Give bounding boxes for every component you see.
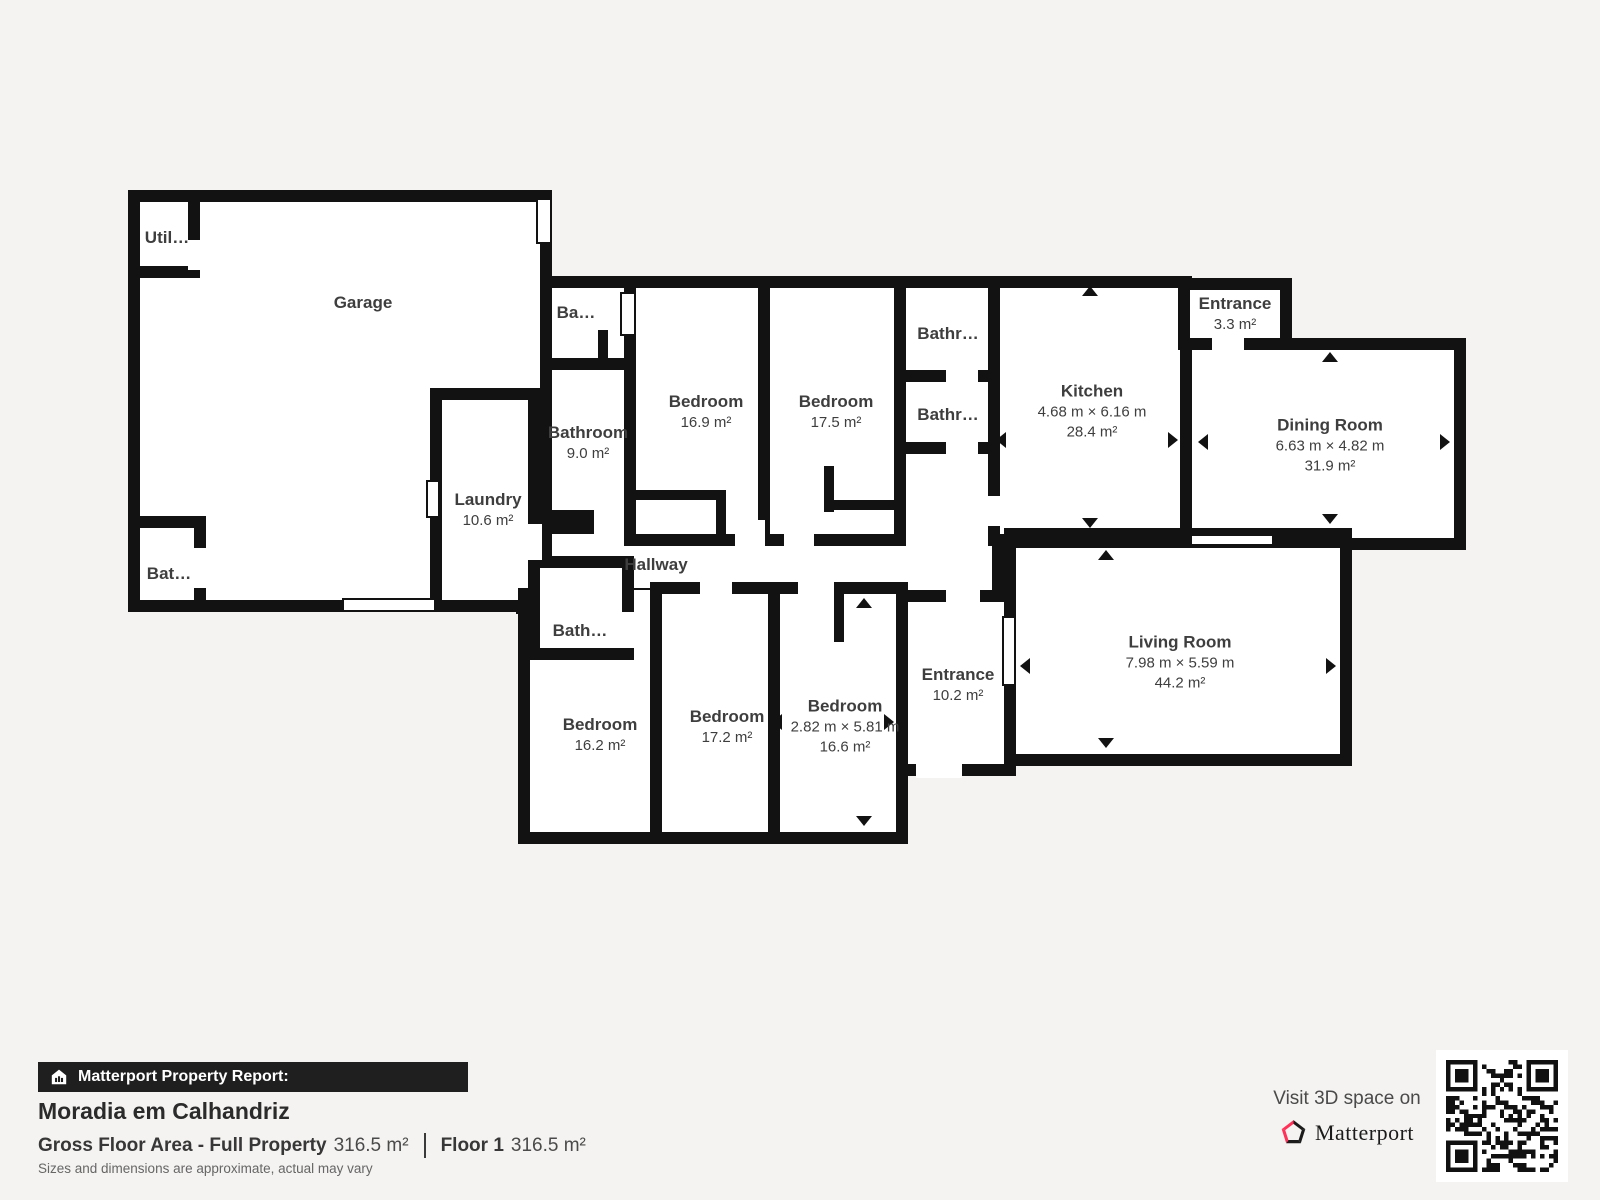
- floor-plan: Garage Util… Bat… Laundry 10.6 m² Ba… Ba…: [0, 0, 1600, 1000]
- door-bedroom-16-6: [798, 580, 834, 596]
- room-label-bathroom-lower: Bathr…: [917, 404, 978, 426]
- window-garage-right: [536, 198, 552, 244]
- room-label-bedroom-16-9: Bedroom 16.9 m²: [669, 391, 744, 433]
- room-label-bathroom-small-top: Ba…: [557, 302, 596, 324]
- window-garage-bottom: [342, 598, 436, 612]
- matterport-wordmark: Matterport: [1315, 1120, 1414, 1146]
- qr-code: [1436, 1050, 1568, 1182]
- room-label-bedroom-17-5: Bedroom 17.5 m²: [799, 391, 874, 433]
- room-label-bathroom-hall: Bath…: [553, 620, 608, 642]
- room-label-bedroom-16-2: Bedroom 16.2 m²: [563, 714, 638, 756]
- property-name: Moradia em Calhandriz: [38, 1098, 290, 1125]
- opening-bedroom-16-2: [634, 590, 650, 662]
- dimension-arrow-left-icon: [772, 714, 782, 730]
- room-label-entrance-small: Entrance 3.3 m²: [1199, 293, 1272, 335]
- door-entrance-main-top: [946, 588, 980, 604]
- room-label-bathroom-9: Bathroom 9.0 m²: [548, 422, 628, 464]
- room-label-kitchen: Kitchen 4.68 m × 6.16 m 28.4 m²: [1038, 380, 1147, 441]
- stats-divider: [424, 1133, 426, 1158]
- door-bathroom-lower: [946, 440, 978, 454]
- window-laundry: [426, 480, 440, 518]
- room-label-garage: Garage: [334, 292, 393, 314]
- dimension-arrow-down-icon: [1082, 518, 1098, 528]
- room-label-bedroom-16-6: Bedroom 2.82 m × 5.81 m 16.6 m²: [791, 695, 900, 756]
- dimension-arrow-right-icon: [1440, 434, 1450, 450]
- door-kitchen: [986, 496, 1006, 526]
- window-entrance-main: [1002, 616, 1016, 686]
- room-label-utility: Util…: [145, 227, 189, 249]
- wall-stub-bathroom-top: [598, 330, 608, 370]
- matterport-brand: Matterport: [1242, 1119, 1452, 1146]
- dimension-arrow-right-icon: [1168, 432, 1178, 448]
- wall-closet-16-9-v: [716, 490, 726, 546]
- report-banner-label: Matterport Property Report:: [78, 1068, 289, 1086]
- window-bathroom-small-top: [620, 292, 636, 336]
- room-label-bedroom-17-2: Bedroom 17.2 m²: [690, 706, 765, 748]
- room-label-entrance-main: Entrance 10.2 m²: [922, 664, 995, 706]
- door-bathroom-upper: [946, 368, 978, 384]
- dimension-arrow-up-icon: [1322, 352, 1338, 362]
- visit-3d-label: Visit 3D space on: [1242, 1088, 1452, 1110]
- hallway-floor-vertical: [906, 452, 992, 590]
- room-label-hallway: Hallway: [624, 554, 687, 576]
- dimension-arrow-left-icon: [996, 432, 1006, 448]
- floor-label: Floor 1: [441, 1135, 504, 1157]
- gross-area-label: Gross Floor Area - Full Property: [38, 1135, 327, 1157]
- room-label-dining: Dining Room 6.63 m × 4.82 m 31.9 m²: [1276, 414, 1385, 475]
- matterport-report-icon: [50, 1068, 68, 1086]
- wall-living-top: [1004, 528, 1352, 548]
- dimension-arrow-down-icon: [856, 816, 872, 826]
- door-entrance-main-bottom: [916, 760, 962, 778]
- wall-stub-bedroom-16-6: [834, 594, 844, 642]
- matterport-logo-icon: [1280, 1119, 1307, 1146]
- dimension-arrow-down-icon: [1322, 514, 1338, 524]
- door-bedroom-16-9: [735, 520, 765, 546]
- floor-value: 316.5 m²: [511, 1135, 586, 1157]
- gross-area-value: 316.5 m²: [334, 1135, 409, 1157]
- dimension-arrow-up-icon: [856, 598, 872, 608]
- area-stats: Gross Floor Area - Full Property 316.5 m…: [38, 1133, 586, 1158]
- room-label-living: Living Room 7.98 m × 5.59 m 44.2 m²: [1126, 631, 1235, 692]
- dimension-arrow-left-icon: [1198, 434, 1208, 450]
- door-entrance-small: [1212, 336, 1244, 352]
- visit-3d-block: Visit 3D space on Matterport: [1242, 1088, 1452, 1146]
- room-label-bathroom-garage: Bat…: [147, 563, 191, 585]
- door-bathroom-9: [594, 508, 624, 536]
- door-bedroom-17-2: [700, 580, 732, 596]
- door-bathroom-garage: [192, 548, 208, 588]
- report-banner: Matterport Property Report:: [38, 1062, 468, 1092]
- dimension-arrow-down-icon: [1098, 738, 1114, 748]
- dimension-arrow-left-icon: [1020, 658, 1030, 674]
- room-label-bathroom-upper: Bathr…: [917, 323, 978, 345]
- window-dining-living: [1190, 534, 1274, 546]
- room-bathroom-hall: [528, 556, 634, 660]
- door-laundry: [526, 524, 542, 560]
- dimension-arrow-up-icon: [1098, 550, 1114, 560]
- wall-closet-17-5-h: [824, 500, 906, 510]
- room-label-laundry: Laundry 10.6 m²: [454, 489, 521, 531]
- wall-closet-16-9-h: [636, 490, 726, 500]
- dimension-arrow-up-icon: [1082, 286, 1098, 296]
- door-utility: [188, 240, 202, 270]
- dimension-arrow-right-icon: [1326, 658, 1336, 674]
- disclaimer-text: Sizes and dimensions are approximate, ac…: [38, 1161, 373, 1176]
- door-bedroom-17-5: [784, 520, 814, 546]
